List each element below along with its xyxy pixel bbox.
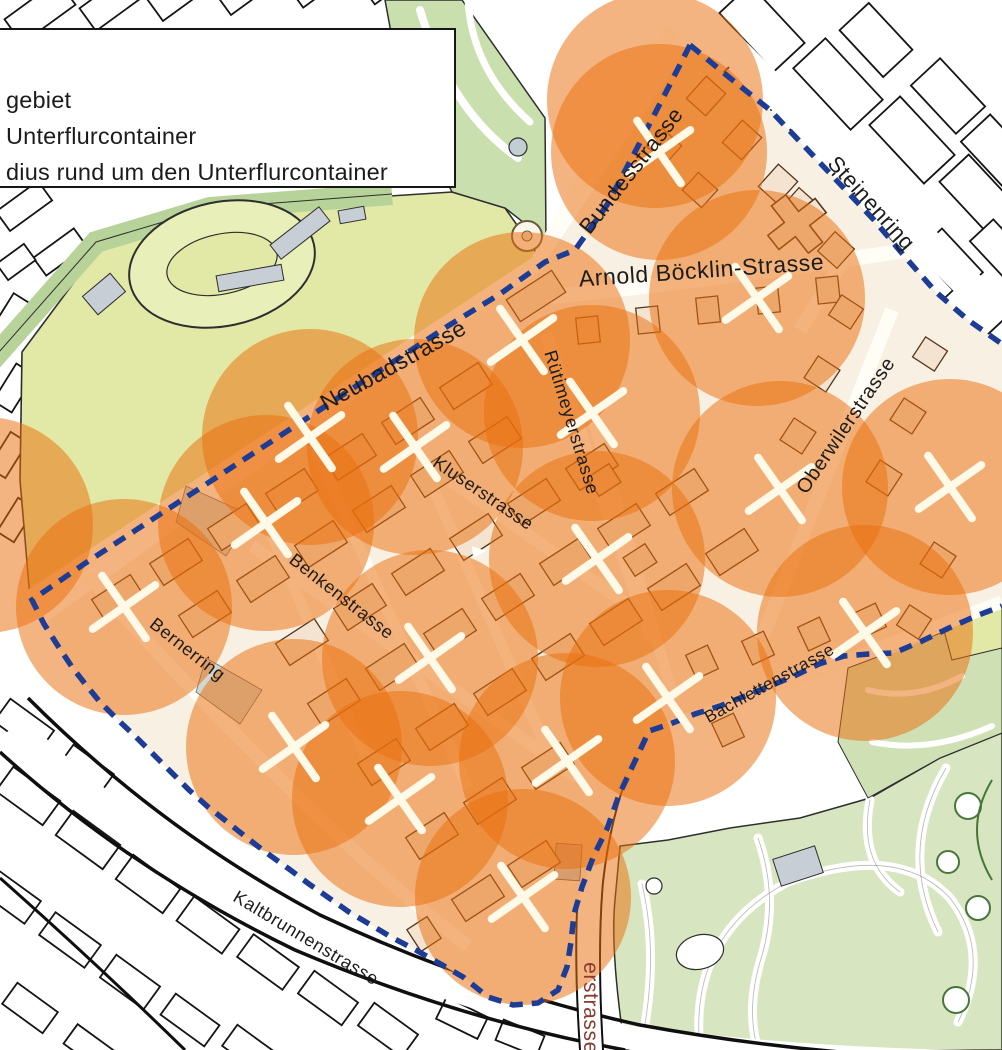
zoo-garden [943, 987, 969, 1013]
legend: gebiet Unterflurcontainer dius rund um d… [0, 28, 456, 188]
legend-item-container-location: Unterflurcontainer [6, 118, 454, 154]
zoo-garden [937, 851, 959, 873]
legend-item-radius: dius rund um den Unterflurcontainer [6, 154, 454, 190]
legend-item-pilot-area: gebiet [6, 82, 454, 118]
coverage-radius-circle [547, 0, 763, 208]
zoo-pond [646, 878, 662, 894]
zoo-garden [966, 896, 990, 920]
map-document: BundesstrasseSteinenringArnold Böcklin-S… [0, 0, 1002, 1050]
street-label: erstrasse [579, 962, 602, 1050]
zoo-garden [955, 793, 981, 819]
park-pond [509, 138, 527, 156]
